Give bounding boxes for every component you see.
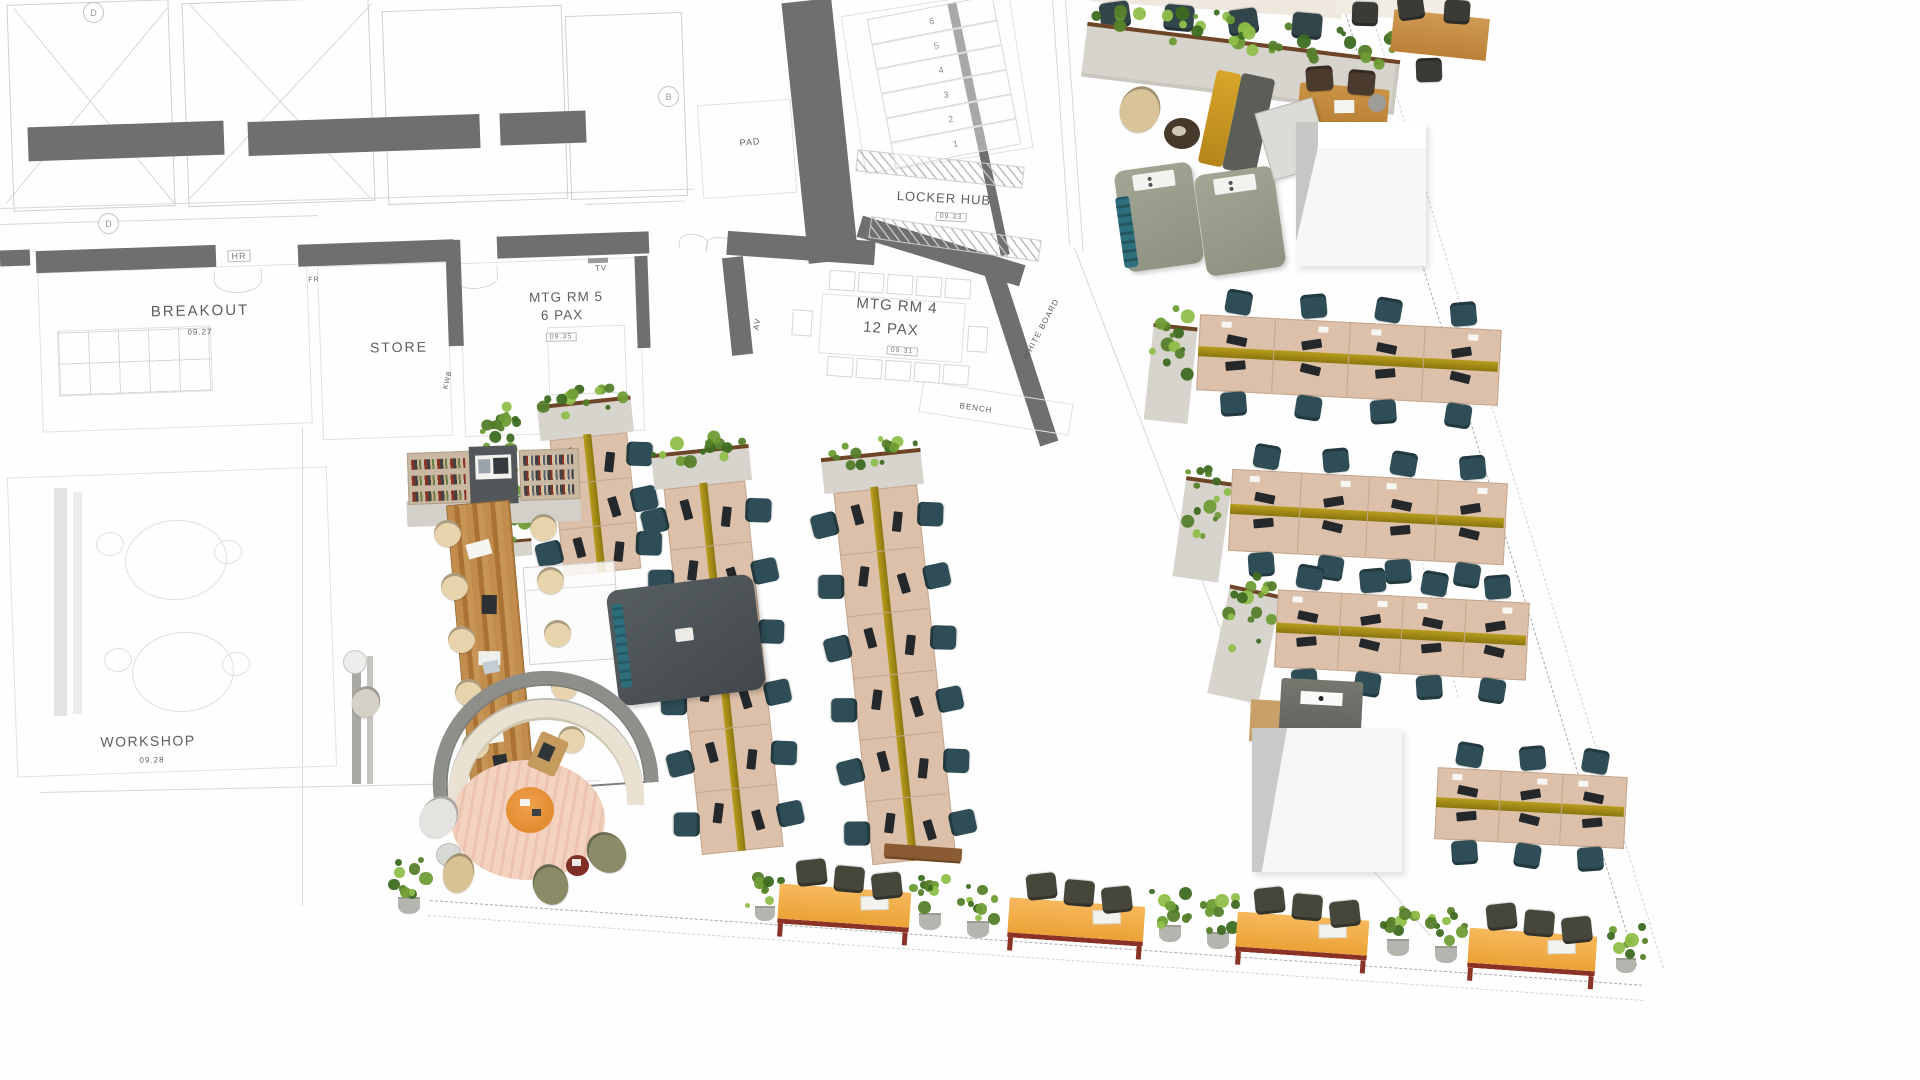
table-item — [572, 859, 581, 866]
office-chair — [1252, 443, 1282, 471]
white-volume — [1252, 728, 1402, 872]
plant-foliage — [1425, 917, 1437, 929]
office-chair — [1369, 399, 1397, 425]
office-chair — [1025, 872, 1058, 901]
desk-paper — [1477, 488, 1487, 495]
table-leg — [1007, 937, 1013, 950]
plant-foliage — [1213, 907, 1223, 917]
table-leg — [777, 923, 783, 936]
office-chair — [1359, 567, 1387, 593]
office-chair — [1443, 402, 1472, 430]
plant-foliage — [555, 393, 567, 405]
office-chair — [1299, 293, 1327, 319]
office-chair — [930, 625, 957, 650]
plant-foliage — [1180, 309, 1195, 324]
side-table — [343, 650, 367, 674]
office-chair — [1580, 747, 1610, 775]
plant-foliage — [567, 388, 579, 400]
plant-foliage — [976, 903, 987, 914]
plant-foliage — [1380, 921, 1387, 928]
grid-marker: D — [98, 213, 119, 234]
round-table — [506, 787, 554, 833]
door-swing-arc — [678, 233, 708, 251]
monitor — [1374, 368, 1395, 379]
plant-foliage — [512, 418, 521, 427]
table-item — [1172, 126, 1186, 136]
chair-sketch — [884, 360, 911, 382]
plant-foliage — [1205, 470, 1212, 477]
desk-paper — [1221, 321, 1231, 328]
room-outline — [181, 0, 375, 207]
plant-foliage — [1456, 926, 1468, 938]
plant-foliage — [941, 874, 951, 884]
book-row — [412, 474, 466, 486]
monitor — [1582, 817, 1603, 828]
plant-foliage — [1613, 942, 1625, 954]
plant-foliage — [395, 859, 402, 866]
plant-foliage — [394, 867, 405, 878]
planter — [819, 434, 923, 490]
office-chair — [1101, 885, 1134, 914]
book-row — [523, 469, 573, 481]
label-fr: FR — [308, 276, 320, 283]
potted-plant — [1374, 900, 1422, 958]
office-chair — [818, 575, 844, 599]
door-frame-post — [54, 488, 67, 716]
chair-sketch — [967, 326, 989, 353]
table-item — [532, 809, 541, 816]
plant-foliage — [1113, 4, 1128, 19]
office-chair — [758, 619, 785, 644]
potted-plant — [1604, 922, 1648, 975]
door-frame-post — [367, 656, 373, 784]
game-box — [482, 659, 500, 674]
plant-foliage — [1638, 923, 1646, 931]
office-chair — [1485, 902, 1518, 931]
display-image — [493, 457, 509, 474]
plant-foliage — [419, 872, 432, 885]
plant-foliage — [1091, 11, 1102, 22]
plant-foliage — [1149, 889, 1155, 895]
plant-foliage — [918, 875, 925, 882]
office-chair — [1443, 0, 1471, 25]
plant-foliage — [1175, 6, 1190, 21]
office-chair — [1420, 570, 1450, 598]
plant-foliage — [878, 436, 884, 442]
plant-foliage — [1450, 912, 1458, 920]
table-leg — [1136, 946, 1142, 959]
plant-foliage — [1179, 887, 1192, 900]
chair-sketch — [913, 362, 940, 384]
plant-foliage — [1165, 901, 1176, 912]
plant-foliage — [418, 857, 424, 863]
potted-plant — [1146, 886, 1194, 944]
display-image — [478, 459, 490, 473]
office-chair — [1513, 842, 1542, 870]
touchdown-table — [776, 879, 911, 942]
office-chair — [639, 506, 670, 536]
chair-sketch — [855, 358, 882, 380]
office-chair — [1455, 741, 1485, 769]
office-chair — [1253, 886, 1286, 915]
office-chair — [1291, 893, 1323, 922]
office-chair — [1347, 69, 1376, 96]
stair-number: 1 — [952, 138, 960, 149]
desk-paper — [1468, 334, 1478, 341]
wall-segment — [722, 256, 753, 356]
plant-pot — [398, 897, 420, 914]
stool — [1368, 94, 1386, 112]
paper — [1334, 100, 1354, 113]
potted-plant — [906, 874, 954, 932]
label-store: STORE — [370, 338, 428, 355]
pod-door-label — [1213, 174, 1257, 196]
grid-marker: B — [658, 86, 679, 107]
book-row — [524, 484, 574, 496]
plant-foliage — [1640, 954, 1646, 960]
office-chair — [934, 685, 964, 714]
plant-foliage — [1284, 22, 1293, 31]
book-shelf — [407, 451, 473, 505]
room-outline — [697, 99, 797, 199]
stair-number: 4 — [938, 64, 946, 75]
desk-paper — [1502, 607, 1512, 614]
chair-sketch — [944, 278, 971, 300]
desk-paper — [1340, 481, 1350, 488]
plant-foliage — [1373, 58, 1385, 70]
office-chair — [1561, 916, 1594, 945]
construction-line — [0, 215, 318, 225]
plant-foliage — [845, 460, 856, 471]
office-chair — [1223, 288, 1253, 316]
plant-foliage — [1205, 907, 1214, 916]
laptop — [482, 595, 497, 614]
label-breakout: BREAKOUT — [151, 302, 250, 321]
office-chair — [1451, 840, 1479, 866]
label-pad: PAD — [739, 136, 761, 148]
plant-foliage — [489, 430, 502, 443]
wall-segment — [0, 249, 30, 266]
table-leg — [1360, 960, 1366, 973]
plant-pot — [1435, 946, 1456, 962]
plant-foliage — [991, 895, 998, 902]
office-chair — [1523, 909, 1555, 938]
desk-paper — [1537, 778, 1547, 785]
label-white-board: WHITE BOARD — [1021, 297, 1061, 361]
pod-door-label — [1132, 170, 1176, 192]
stair-number: 5 — [933, 40, 941, 51]
office-chair — [943, 748, 970, 773]
booth-table — [675, 627, 694, 642]
desk-paper — [1318, 326, 1328, 333]
label-hr: HR — [227, 250, 250, 263]
office-chair — [1322, 447, 1350, 473]
desk-paper — [1418, 603, 1428, 610]
stair-number: 3 — [942, 89, 950, 100]
plant-pot — [755, 906, 775, 922]
chair-sketch — [791, 309, 813, 336]
monitor — [1253, 518, 1274, 529]
book-row — [411, 458, 465, 470]
plant-foliage — [409, 889, 415, 895]
book-row — [412, 490, 466, 502]
book-shelf — [519, 448, 581, 501]
plant-foliage — [957, 898, 965, 906]
plant-foliage — [543, 395, 552, 404]
monitor — [1456, 811, 1477, 822]
wall-segment — [499, 111, 586, 146]
desk-bank — [802, 432, 979, 864]
plant-foliage — [409, 863, 420, 874]
plant-foliage — [988, 913, 1000, 925]
office-chair — [1458, 454, 1486, 480]
planter — [1144, 302, 1200, 420]
plant-pot — [919, 913, 940, 929]
desk-paper — [1578, 780, 1588, 787]
plant-foliage — [501, 402, 512, 413]
office-chair — [762, 677, 792, 706]
office-chair — [831, 698, 857, 722]
plant-foliage — [1185, 469, 1191, 475]
office-chair — [844, 822, 870, 846]
table-leg — [1235, 951, 1241, 964]
plant-foliage — [909, 884, 918, 893]
touchdown-table — [1234, 907, 1369, 970]
chair-sketch — [827, 356, 854, 378]
desk-paper — [1250, 476, 1260, 483]
chair-sketch — [857, 272, 884, 294]
office-chair — [1295, 563, 1325, 591]
office-chair — [1063, 879, 1095, 908]
office-chair — [1483, 574, 1511, 600]
office-chair — [1396, 0, 1425, 22]
table-item — [520, 799, 530, 806]
room-outline — [6, 0, 175, 212]
plant-foliage — [1172, 304, 1181, 313]
focus-booth — [605, 573, 766, 706]
label-09-35: 09.35 — [546, 332, 577, 342]
potted-plant — [954, 882, 1002, 940]
book-row — [523, 454, 573, 466]
pod-accent — [1115, 196, 1139, 269]
office-chair — [947, 808, 977, 837]
plant-foliage — [1436, 929, 1444, 937]
office-chair — [1389, 450, 1419, 478]
wall-segment — [445, 240, 464, 346]
office-chair — [1519, 745, 1547, 771]
label-tv: TV — [595, 263, 608, 272]
chair-sketch — [829, 270, 856, 292]
meeting-pod — [1113, 161, 1204, 273]
plant-foliage — [1296, 34, 1311, 49]
plant-foliage — [918, 901, 931, 914]
wall-segment — [27, 121, 224, 162]
office-chair — [1352, 2, 1379, 27]
desk-paper — [1371, 329, 1381, 336]
plant-foliage — [745, 903, 750, 908]
volume-top-edge — [1318, 122, 1426, 148]
plant-foliage — [503, 412, 510, 419]
label-6-pax: 6 PAX — [541, 307, 584, 323]
plant-foliage — [1305, 47, 1317, 59]
office-chair — [1416, 58, 1443, 83]
plant-foliage — [1213, 9, 1220, 16]
office-chair — [745, 497, 772, 522]
desk-paper — [1453, 774, 1463, 781]
office-chair — [809, 510, 840, 540]
table-leg — [1588, 976, 1594, 989]
grid-marker: D — [83, 2, 104, 23]
plant-foliage — [1193, 482, 1200, 489]
plant-pot — [967, 921, 988, 937]
office-chair — [871, 871, 904, 900]
construction-line — [585, 201, 685, 205]
floorplan-scene: 654321BREAKOUT09.27STOREMTG RM 56 PAX09.… — [0, 0, 1920, 1080]
office-chair — [1449, 301, 1477, 327]
touchdown-table — [1466, 924, 1597, 987]
office-chair — [822, 634, 853, 664]
office-chair — [917, 502, 944, 527]
touchdown-table — [1006, 893, 1145, 956]
wall-segment — [634, 256, 650, 348]
desk-paper — [1387, 483, 1397, 490]
desk-row — [1433, 741, 1627, 873]
paper — [465, 539, 492, 560]
label-av: AV — [751, 317, 762, 331]
office-chair — [775, 799, 805, 828]
potted-plant — [1422, 907, 1470, 965]
office-chair — [835, 757, 866, 787]
potted-plant — [384, 856, 434, 916]
label-09-33: 09.33 — [936, 212, 967, 223]
planter — [535, 382, 633, 438]
stair-number: 2 — [947, 113, 955, 124]
plant-foliage — [604, 383, 615, 394]
plant-foliage — [669, 435, 684, 450]
plant-foliage — [1161, 9, 1174, 22]
plant-foliage — [1343, 36, 1357, 50]
monitor — [1421, 643, 1442, 654]
stair-number: 6 — [928, 15, 936, 26]
plant-foliage — [481, 419, 493, 431]
door-frame-post — [73, 492, 82, 714]
office-chair — [1305, 65, 1334, 92]
wall-segment — [497, 231, 650, 258]
chair-sketch — [915, 276, 942, 298]
office-chair — [1576, 846, 1604, 872]
plant-foliage — [1225, 15, 1235, 25]
chair-sketch — [886, 274, 913, 296]
plant-foliage — [912, 441, 918, 447]
planter — [1173, 455, 1235, 578]
office-chair — [795, 858, 828, 887]
desk-row — [1195, 288, 1501, 430]
label-workshop: WORKSHOP — [100, 732, 195, 750]
plant-foliage — [1607, 932, 1615, 940]
plant-foliage — [966, 884, 971, 889]
office-chair — [770, 740, 797, 765]
label-locker-hub: LOCKER HUB — [896, 188, 991, 208]
table-leg — [902, 932, 908, 945]
plant-foliage — [1341, 31, 1347, 37]
plant-foliage — [1178, 20, 1188, 30]
plant-foliage — [1193, 14, 1199, 20]
meeting-pod — [1193, 165, 1286, 277]
plant-foliage — [1132, 6, 1147, 21]
office-chair — [1114, 81, 1167, 138]
plant-foliage — [918, 889, 925, 896]
chair-sketch — [942, 364, 969, 386]
table-leg — [1467, 968, 1473, 981]
plant-foliage — [1217, 925, 1226, 934]
plant-pot — [1616, 958, 1635, 973]
plant-foliage — [1625, 933, 1639, 947]
desk-paper — [1293, 596, 1303, 603]
room-outline — [382, 5, 569, 205]
floorplan-viewport[interactable]: 654321BREAKOUT09.27STOREMTG RM 56 PAX09.… — [0, 0, 1920, 1080]
plant-foliage — [977, 885, 987, 895]
office-chair — [921, 561, 951, 590]
plant-foliage — [1157, 921, 1165, 929]
label-mtg-rm-5: MTG RM 5 — [529, 289, 603, 305]
office-chair — [674, 812, 700, 836]
plant-foliage — [968, 901, 974, 907]
plant-foliage — [506, 433, 515, 442]
office-chair — [749, 556, 779, 585]
label-09-28: 09.28 — [139, 755, 164, 764]
plant-foliage — [762, 886, 769, 893]
label-09-27: 09.27 — [187, 327, 212, 336]
office-chair — [1219, 391, 1247, 417]
booth-accent — [611, 604, 632, 689]
office-chair — [1293, 394, 1322, 422]
plant-foliage — [841, 443, 848, 450]
office-chair — [1416, 675, 1444, 701]
plant-foliage — [765, 896, 774, 905]
monitor — [1225, 360, 1246, 371]
plant-foliage — [1242, 25, 1257, 40]
media-wall — [469, 445, 519, 505]
office-chair — [833, 865, 865, 894]
monitor — [1390, 525, 1411, 536]
white-volume — [1296, 122, 1426, 266]
office-chair — [1373, 296, 1403, 324]
plant-foliage — [388, 879, 400, 891]
plant-pot — [1207, 932, 1228, 948]
desk-paper — [1377, 601, 1387, 608]
plant-foliage — [1444, 935, 1455, 946]
office-chair — [1477, 677, 1506, 705]
plant-foliage — [1185, 913, 1192, 920]
plant-pot — [1387, 939, 1408, 955]
planter — [649, 430, 751, 486]
plant-foliage — [1642, 938, 1648, 944]
office-chair — [1329, 899, 1362, 928]
office-chair — [665, 749, 696, 779]
monitor — [1296, 636, 1317, 647]
plant-foliage — [833, 454, 840, 461]
